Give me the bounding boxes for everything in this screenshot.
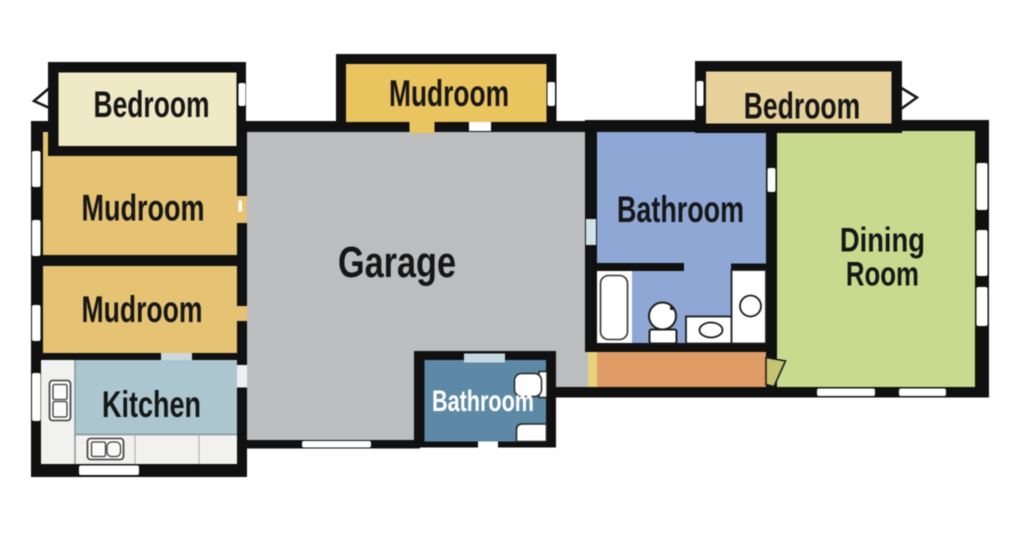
svg-text:Bedroom: Bedroom bbox=[94, 84, 210, 125]
svg-text:Mudroom: Mudroom bbox=[82, 188, 205, 229]
svg-text:Bathroom: Bathroom bbox=[617, 189, 744, 230]
svg-text:Mudroom: Mudroom bbox=[389, 73, 509, 114]
svg-text:Kitchen: Kitchen bbox=[102, 384, 201, 425]
svg-text:Garage: Garage bbox=[338, 238, 456, 287]
svg-text:Dining: Dining bbox=[840, 222, 925, 260]
svg-text:Bedroom: Bedroom bbox=[744, 86, 861, 127]
svg-text:Bathroom: Bathroom bbox=[432, 385, 534, 418]
svg-text:Mudroom: Mudroom bbox=[82, 289, 203, 330]
svg-text:Room: Room bbox=[846, 256, 919, 294]
